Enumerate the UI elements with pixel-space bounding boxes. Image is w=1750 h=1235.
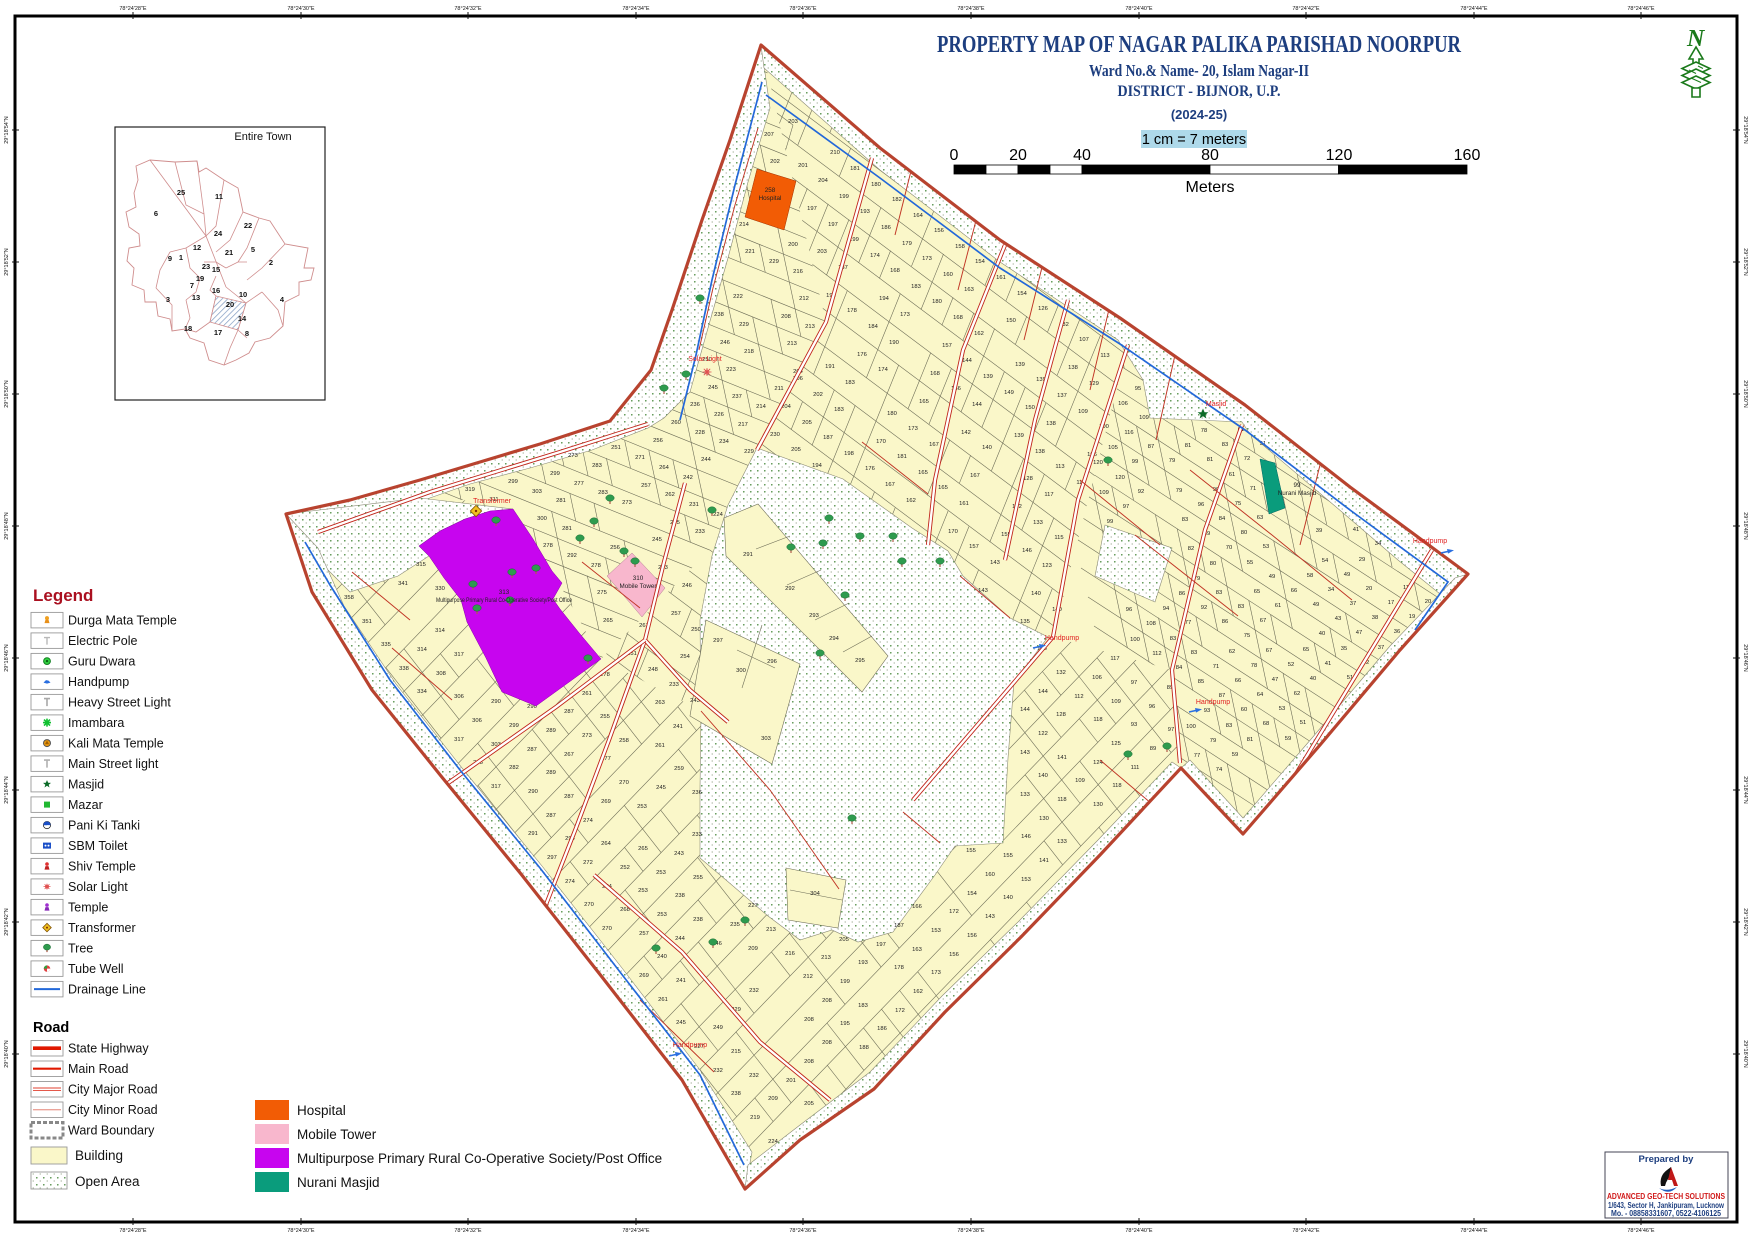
- svg-text:Nurani Masjid: Nurani Masjid: [297, 1175, 380, 1190]
- svg-text:Mazar: Mazar: [68, 798, 103, 812]
- svg-text:78°24'30"E: 78°24'30"E: [287, 1228, 315, 1234]
- svg-text:0: 0: [950, 147, 959, 164]
- svg-text:Heavy Street Light: Heavy Street Light: [68, 695, 171, 709]
- svg-text:Ward Boundary: Ward Boundary: [68, 1124, 155, 1138]
- svg-text:78°24'42"E: 78°24'42"E: [1292, 6, 1320, 12]
- svg-text:29°18'40"N: 29°18'40"N: [1742, 1040, 1748, 1068]
- svg-text:Main Street light: Main Street light: [68, 757, 159, 771]
- svg-text:15: 15: [212, 265, 220, 274]
- svg-text:29°18'44"N: 29°18'44"N: [1742, 776, 1748, 804]
- svg-text:18: 18: [184, 324, 192, 333]
- svg-text:Mobile Tower: Mobile Tower: [297, 1127, 377, 1142]
- svg-text:Electric Pole: Electric Pole: [68, 634, 138, 648]
- svg-text:Shiv Temple: Shiv Temple: [68, 859, 136, 873]
- svg-text:1 cm = 7 meters: 1 cm = 7 meters: [1142, 132, 1246, 148]
- svg-text:22: 22: [244, 221, 252, 230]
- svg-text:78°24'34"E: 78°24'34"E: [622, 6, 650, 12]
- svg-text:6: 6: [154, 209, 158, 218]
- svg-text:Prepared by: Prepared by: [1639, 1154, 1695, 1165]
- svg-text:20: 20: [1009, 147, 1027, 164]
- svg-text:Meters: Meters: [1186, 179, 1235, 196]
- svg-text:78°24'28"E: 78°24'28"E: [119, 6, 147, 12]
- svg-text:ADVANCED GEO-TECH SOLUTIONS: ADVANCED GEO-TECH SOLUTIONS: [1607, 1191, 1725, 1201]
- svg-text:Legend: Legend: [33, 586, 93, 605]
- svg-text:Building: Building: [75, 1148, 123, 1163]
- svg-text:Kali Mata Temple: Kali Mata Temple: [68, 736, 164, 750]
- svg-text:78°24'38"E: 78°24'38"E: [957, 6, 985, 12]
- svg-text:9: 9: [168, 254, 172, 263]
- svg-text:Road: Road: [33, 1020, 69, 1036]
- svg-text:14: 14: [238, 314, 247, 323]
- svg-text:29°18'52"N: 29°18'52"N: [1742, 248, 1748, 276]
- svg-text:78°24'40"E: 78°24'40"E: [1125, 1228, 1153, 1234]
- svg-text:24: 24: [214, 229, 223, 238]
- svg-text:Solar Light: Solar Light: [68, 880, 128, 894]
- svg-text:Imambara: Imambara: [68, 716, 124, 730]
- svg-text:78°24'46"E: 78°24'46"E: [1627, 1228, 1655, 1234]
- svg-text:Handpump: Handpump: [68, 675, 129, 689]
- svg-text:Tube Well: Tube Well: [68, 962, 124, 976]
- svg-text:Durga Mata Temple: Durga Mata Temple: [68, 613, 177, 627]
- svg-text:Masjid: Masjid: [68, 777, 104, 791]
- svg-text:Tree: Tree: [68, 941, 93, 955]
- svg-text:13: 13: [192, 293, 200, 302]
- svg-text:23: 23: [202, 262, 210, 271]
- svg-text:City Major Road: City Major Road: [68, 1083, 158, 1097]
- svg-text:29°18'48"N: 29°18'48"N: [1742, 512, 1748, 540]
- svg-text:Transformer: Transformer: [68, 921, 136, 935]
- svg-text:78°24'36"E: 78°24'36"E: [789, 1228, 817, 1234]
- svg-text:(2024-25): (2024-25): [1171, 107, 1227, 122]
- svg-text:40: 40: [1073, 147, 1091, 164]
- svg-text:11: 11: [215, 192, 223, 201]
- svg-text:29°18'50"N: 29°18'50"N: [1742, 380, 1748, 408]
- svg-text:78°24'28"E: 78°24'28"E: [119, 1228, 147, 1234]
- svg-text:Pani Ki Tanki: Pani Ki Tanki: [68, 818, 140, 832]
- svg-text:29°18'50"N: 29°18'50"N: [4, 380, 10, 408]
- svg-text:Entire Town: Entire Town: [234, 131, 291, 143]
- svg-text:Drainage Line: Drainage Line: [68, 982, 146, 996]
- svg-text:25: 25: [177, 188, 185, 197]
- svg-text:78°24'44"E: 78°24'44"E: [1460, 6, 1488, 12]
- svg-text:29°18'40"N: 29°18'40"N: [4, 1040, 10, 1068]
- svg-text:29°18'48"N: 29°18'48"N: [4, 512, 10, 540]
- svg-text:29°18'42"N: 29°18'42"N: [4, 908, 10, 936]
- svg-text:Mo. - 08858331607, 0522-410612: Mo. - 08858331607, 0522-4106125: [1611, 1209, 1721, 1218]
- svg-text:DISTRICT - BIJNOR, U.P.: DISTRICT - BIJNOR, U.P.: [1118, 83, 1281, 100]
- svg-text:78°24'38"E: 78°24'38"E: [957, 1228, 985, 1234]
- svg-text:State Highway: State Highway: [68, 1042, 149, 1056]
- svg-text:12: 12: [193, 243, 201, 252]
- svg-text:Guru Dwara: Guru Dwara: [68, 654, 135, 668]
- svg-text:SBM Toilet: SBM Toilet: [68, 839, 128, 853]
- svg-text:Open Area: Open Area: [75, 1174, 140, 1189]
- svg-text:20: 20: [226, 300, 234, 309]
- svg-text:Hospital: Hospital: [297, 1103, 346, 1118]
- svg-text:2: 2: [269, 258, 273, 267]
- svg-text:Multipurpose Primary Rural Co-: Multipurpose Primary Rural Co-Operative …: [297, 1151, 662, 1166]
- svg-text:Main Road: Main Road: [68, 1062, 128, 1076]
- svg-text:8: 8: [245, 329, 249, 338]
- svg-text:29°18'46"N: 29°18'46"N: [1742, 644, 1748, 672]
- svg-text:Temple: Temple: [68, 900, 108, 914]
- svg-text:80: 80: [1201, 147, 1219, 164]
- svg-text:7: 7: [190, 281, 194, 290]
- svg-text:19: 19: [196, 274, 204, 283]
- svg-text:78°24'34"E: 78°24'34"E: [622, 1228, 650, 1234]
- svg-text:78°24'40"E: 78°24'40"E: [1125, 6, 1153, 12]
- svg-text:29°18'54"N: 29°18'54"N: [4, 116, 10, 144]
- svg-text:PROPERTY MAP OF NAGAR PALIKA P: PROPERTY MAP OF NAGAR PALIKA PARISHAD NO…: [937, 32, 1462, 58]
- svg-text:16: 16: [212, 286, 220, 295]
- svg-text:21: 21: [225, 248, 233, 257]
- svg-text:Ward No.& Name- 20, Islam Naga: Ward No.& Name- 20, Islam Nagar-II: [1089, 61, 1309, 80]
- svg-text:3: 3: [166, 295, 170, 304]
- svg-text:78°24'42"E: 78°24'42"E: [1292, 1228, 1320, 1234]
- svg-text:78°24'30"E: 78°24'30"E: [287, 6, 315, 12]
- svg-text:78°24'32"E: 78°24'32"E: [454, 6, 482, 12]
- svg-text:City Minor Road: City Minor Road: [68, 1103, 158, 1117]
- svg-text:5: 5: [251, 245, 255, 254]
- svg-text:29°18'54"N: 29°18'54"N: [1742, 116, 1748, 144]
- svg-text:29°18'46"N: 29°18'46"N: [4, 644, 10, 672]
- svg-text:78°24'36"E: 78°24'36"E: [789, 6, 817, 12]
- svg-text:17: 17: [214, 328, 222, 337]
- svg-text:29°18'42"N: 29°18'42"N: [1742, 908, 1748, 936]
- svg-text:160: 160: [1454, 147, 1481, 164]
- svg-text:29°18'44"N: 29°18'44"N: [4, 776, 10, 804]
- svg-text:78°24'44"E: 78°24'44"E: [1460, 1228, 1488, 1234]
- svg-text:10: 10: [239, 290, 247, 299]
- svg-text:29°18'52"N: 29°18'52"N: [4, 248, 10, 276]
- svg-text:78°24'32"E: 78°24'32"E: [454, 1228, 482, 1234]
- svg-text:78°24'46"E: 78°24'46"E: [1627, 6, 1655, 12]
- svg-text:120: 120: [1326, 147, 1353, 164]
- svg-text:1: 1: [179, 253, 183, 262]
